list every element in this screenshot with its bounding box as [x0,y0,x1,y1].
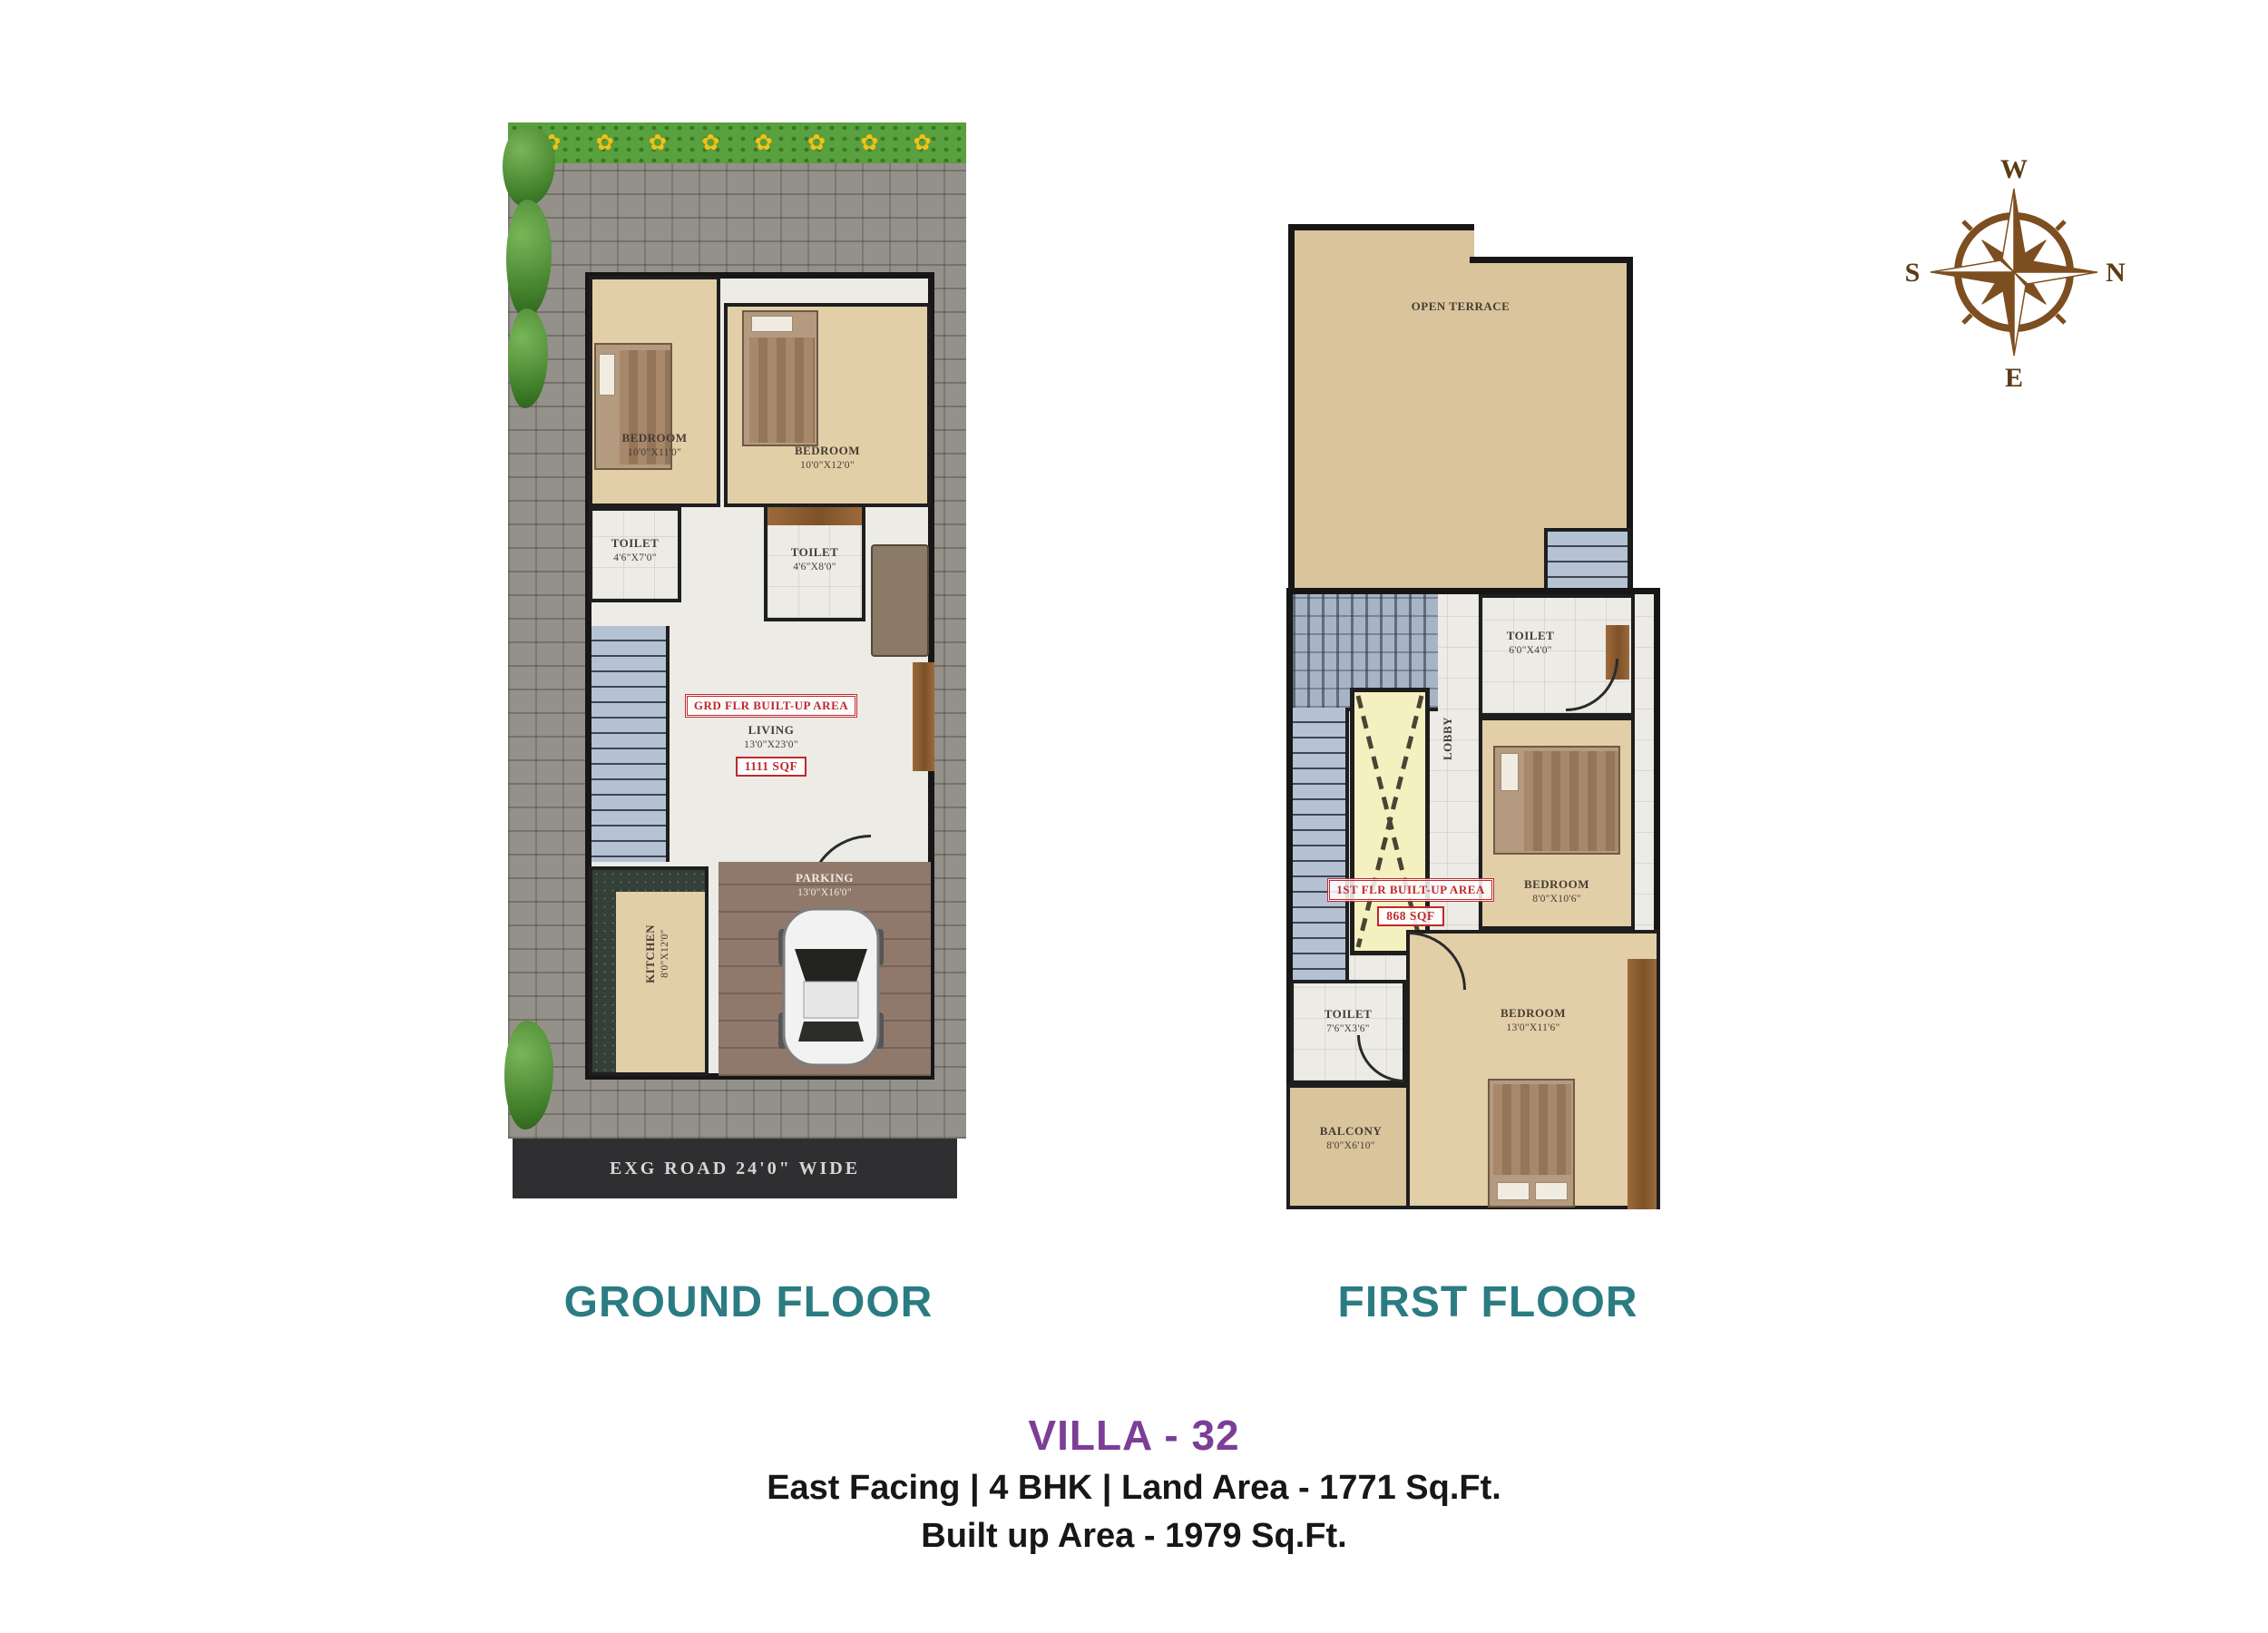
ground-parking: PARKING 13'0"X16'0" [719,862,931,1076]
room-label: BEDROOM 10'0"X12'0" [728,444,927,473]
room-label: BEDROOM 10'0"X11'0" [592,431,717,460]
bed [742,310,818,446]
bed [1493,746,1620,855]
first-staircase [1293,708,1349,980]
ground-floor-title: GROUND FLOOR [494,1277,1002,1327]
first-toilet2: TOILET 7'6"X3'6" [1290,980,1406,1084]
ground-kitchen: KITCHEN 8'0"X12'0" [589,866,709,1076]
compass-west-label: W [2000,154,2028,184]
kitchen-counter [592,870,616,1072]
ground-bedroom1: BEDROOM 10'0"X11'0" [589,276,720,507]
door-arc [1408,932,1466,990]
caption-line1: East Facing | 4 BHK | Land Area - 1771 S… [590,1469,1678,1508]
first-floor-plan: OPEN TERRACE LOBBY TOILET 6'0"X4'0" [1279,136,1696,1216]
first-bedroom1: BEDROOM 8'0"X10'6" [1479,717,1635,930]
wardrobe [767,507,862,525]
wardrobe [1628,959,1657,1209]
area-value: 868 SQF [1377,906,1443,926]
flower-icon: ✿ [914,132,932,154]
room-label: TOILET 7'6"X3'6" [1294,1007,1403,1036]
first-area-tags: 1ST FLR BUILT-UP AREA 868 SQF [1329,878,1492,926]
room-label: LIVING 13'0"X23'0" [744,723,798,752]
ground-staircase [591,626,670,862]
compass-east-label: E [2005,363,2023,393]
ground-bedroom2: BEDROOM 10'0"X12'0" [724,303,931,507]
first-toilet1: TOILET 6'0"X4'0" [1479,594,1635,717]
villa-title: VILLA - 32 [590,1411,1678,1460]
room-label: OPEN TERRACE [1334,299,1588,315]
compass-rose: W N E S [1896,150,2132,395]
compass-north-label: N [2106,258,2126,288]
caption-block: VILLA - 32 East Facing | 4 BHK | Land Ar… [590,1411,1678,1556]
ground-garden-strip: ✿ ✿ ✿ ✿ ✿ ✿ ✿ ✿ [508,122,966,163]
caption-line2: Built up Area - 1979 Sq.Ft. [590,1517,1678,1556]
compass-south-label: S [1905,258,1921,288]
bed [1488,1079,1575,1208]
ground-living: GRD FLR BUILT-UP AREA LIVING 13'0"X23'0"… [680,694,862,777]
sitout-deck [913,662,934,771]
road-strip: EXG ROAD 24'0" WIDE [513,1139,957,1198]
first-floor-title: FIRST FLOOR [1270,1277,1706,1327]
door-arc [1566,659,1618,711]
room-label: BEDROOM 13'0"X11'6" [1410,1006,1657,1035]
area-value: 1111 SQF [736,757,807,777]
flower-icon: ✿ [807,132,826,154]
ground-toilet2: TOILET 4'6"X8'0" [764,504,865,621]
first-balcony: BALCONY 8'0"X6'10" [1286,1084,1415,1209]
room-label: BALCONY 8'0"X6'10" [1290,1124,1412,1153]
room-label: PARKING 13'0"X16'0" [719,871,931,900]
terrace-stairs [1544,528,1631,595]
area-tag: 1ST FLR BUILT-UP AREA [1327,878,1494,902]
brochure-page: ✿ ✿ ✿ ✿ ✿ ✿ ✿ ✿ BEDROOM 10'0"X11'0" [0,0,2268,1633]
room-label: KITCHEN 8'0"X12'0" [643,924,672,983]
flower-icon: ✿ [860,132,878,154]
kitchen-counter [592,870,705,892]
road-label: EXG ROAD 24'0" WIDE [610,1159,860,1179]
terrace-left [1288,224,1474,594]
flower-icon: ✿ [701,132,719,154]
area-tag: GRD FLR BUILT-UP AREA [685,694,857,718]
room-label: TOILET 4'6"X7'0" [592,536,678,565]
flower-icon: ✿ [755,132,773,154]
sofa [871,544,929,657]
room-label: TOILET 6'0"X4'0" [1490,629,1571,658]
first-lobby: LOBBY [1441,717,1456,760]
room-label: BEDROOM 8'0"X10'6" [1482,877,1631,906]
flower-icon: ✿ [649,132,667,154]
ground-toilet1: TOILET 4'6"X7'0" [589,507,681,602]
room-label: TOILET 4'6"X8'0" [767,545,862,574]
ground-floor-plan: ✿ ✿ ✿ ✿ ✿ ✿ ✿ ✿ BEDROOM 10'0"X11'0" [508,118,971,1202]
flower-icon: ✿ [596,132,614,154]
car-top-view [777,905,885,1069]
door-arc [1357,1035,1404,1082]
first-bedroom2: BEDROOM 13'0"X11'6" [1406,930,1660,1209]
